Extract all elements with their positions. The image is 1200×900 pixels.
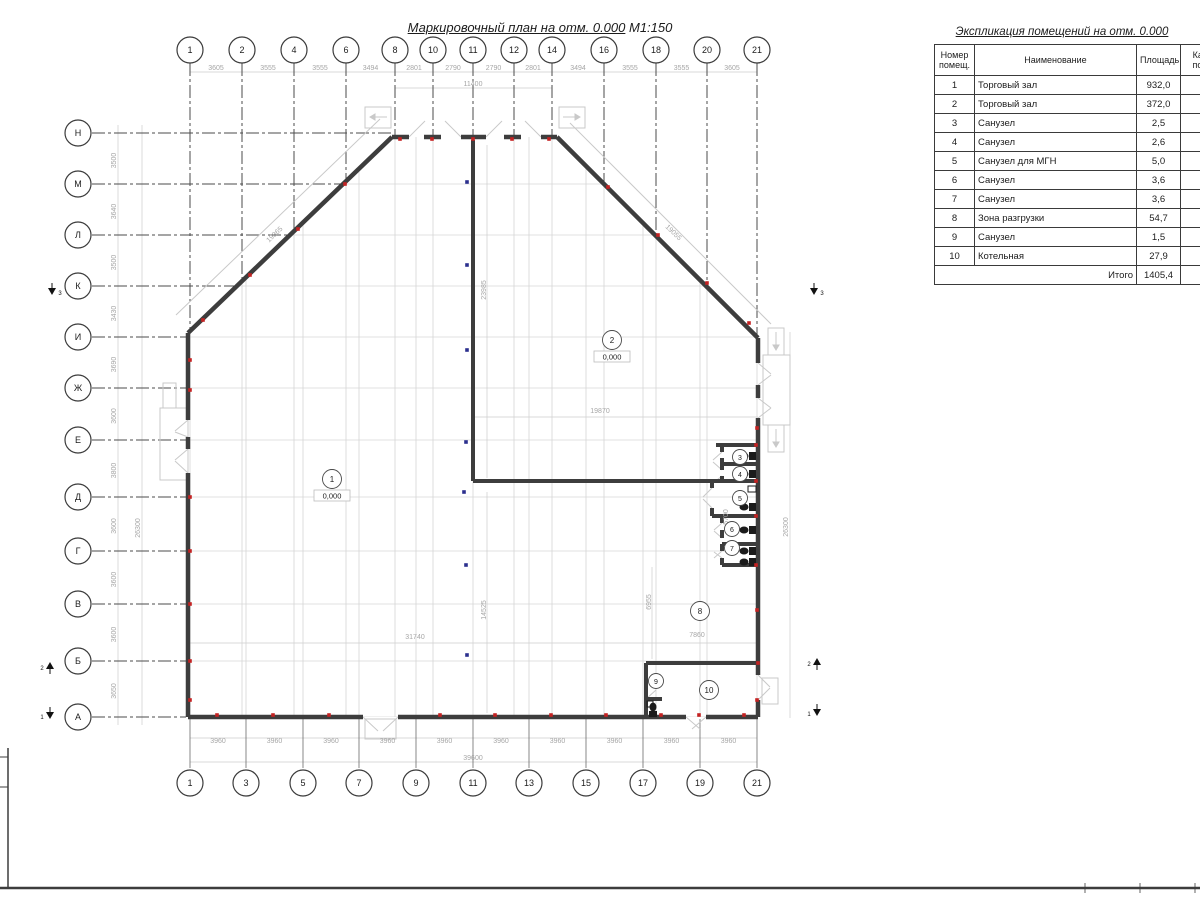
svg-text:Л: Л [75, 230, 81, 240]
svg-text:3800: 3800 [111, 463, 118, 479]
svg-text:0,000: 0,000 [323, 492, 342, 501]
svg-text:Н: Н [75, 128, 82, 138]
toilet-icon [749, 526, 756, 534]
room-area-cell: 1,5 [1137, 228, 1181, 247]
svg-text:23985: 23985 [481, 280, 488, 300]
svg-text:3960: 3960 [380, 738, 396, 745]
svg-text:3555: 3555 [622, 65, 638, 72]
svg-text:3960: 3960 [323, 738, 339, 745]
svg-text:Б: Б [75, 656, 81, 666]
svg-text:3: 3 [738, 455, 742, 462]
room-number-cell: 9 [935, 228, 975, 247]
axis-bubbles: 12468101112141618202113579111315171921НМ… [65, 37, 770, 796]
room-number-cell: 5 [935, 152, 975, 171]
svg-text:4: 4 [291, 45, 296, 55]
room-name-cell: Торговый зал [975, 76, 1137, 95]
dimension-lines [118, 72, 790, 762]
room-number-cell: 1 [935, 76, 975, 95]
svg-text:1: 1 [187, 778, 192, 788]
svg-text:3960: 3960 [721, 738, 737, 745]
explication-row: 3 Санузел 2,5 [935, 114, 1200, 133]
explication-row: 8 Зона разгрузки 54,7 [935, 209, 1200, 228]
svg-text:Е: Е [75, 435, 81, 445]
svg-text:3960: 3960 [664, 738, 680, 745]
svg-text:20: 20 [702, 45, 712, 55]
svg-text:3960: 3960 [437, 738, 453, 745]
svg-text:6955: 6955 [646, 594, 653, 610]
total-category-cell [1181, 266, 1200, 285]
svg-text:5: 5 [738, 496, 742, 503]
toilet-icon [749, 503, 756, 511]
svg-text:И: И [75, 332, 81, 342]
svg-text:3960: 3960 [267, 738, 283, 745]
total-row: Итого 1405,4 [935, 266, 1200, 285]
explication-panel: Экспликация помещений на отм. 0.000 Номе… [934, 26, 1200, 285]
svg-text:Г: Г [76, 546, 81, 556]
svg-text:3430: 3430 [111, 306, 118, 322]
svg-text:2: 2 [239, 45, 244, 55]
room-area-cell: 27,9 [1137, 247, 1181, 266]
svg-text:3: 3 [58, 291, 62, 297]
plan-title-text: Маркировочный план на отм. 0.000 [408, 20, 626, 35]
explication-row: 5 Санузел для МГН 5,0 [935, 152, 1200, 171]
room-name-cell: Котельная [975, 247, 1137, 266]
svg-text:3600: 3600 [111, 627, 118, 643]
room-name-cell: Санузел [975, 190, 1137, 209]
toilet-icon [749, 452, 756, 460]
svg-text:Д: Д [75, 492, 81, 502]
svg-text:11: 11 [468, 778, 477, 788]
svg-text:11400: 11400 [464, 81, 483, 88]
total-value: 1405,4 [1137, 266, 1181, 285]
room-name-cell: Санузел [975, 171, 1137, 190]
drawing-sheet: 3605355535553494280127902790280134943555… [0, 0, 1200, 900]
svg-text:39600: 39600 [463, 755, 483, 762]
svg-text:19870: 19870 [590, 408, 610, 415]
room-name-cell: Торговый зал [975, 95, 1137, 114]
svg-text:4: 4 [738, 472, 742, 479]
svg-text:К: К [75, 281, 81, 291]
svg-text:14525: 14525 [481, 600, 488, 620]
explication-row: 2 Торговый зал 372,0 [935, 95, 1200, 114]
room-number-cell: 8 [935, 209, 975, 228]
explication-row: 9 Санузел 1,5 [935, 228, 1200, 247]
col-header-category: Кат.пом [1181, 45, 1200, 76]
svg-text:3: 3 [243, 778, 248, 788]
room-category-cell [1181, 133, 1200, 152]
explication-row: 1 Торговый зал 932,0 [935, 76, 1200, 95]
svg-text:3960: 3960 [493, 738, 509, 745]
svg-text:7860: 7860 [689, 632, 705, 639]
svg-text:13: 13 [524, 778, 534, 788]
explication-row: 10 Котельная 27,9 [935, 247, 1200, 266]
svg-text:3600: 3600 [111, 572, 118, 588]
svg-text:18: 18 [651, 45, 661, 55]
svg-text:2: 2 [610, 336, 615, 345]
svg-text:15: 15 [581, 778, 591, 788]
room-area-cell: 2,6 [1137, 133, 1181, 152]
room-category-cell [1181, 190, 1200, 209]
svg-text:19: 19 [695, 778, 705, 788]
room-category-cell [1181, 247, 1200, 266]
room-area-cell: 5,0 [1137, 152, 1181, 171]
col-header-number: Номерпомещ. [935, 45, 975, 76]
svg-text:2801: 2801 [525, 65, 541, 72]
svg-text:1: 1 [187, 45, 192, 55]
svg-text:1: 1 [807, 712, 811, 718]
svg-text:1: 1 [330, 475, 335, 484]
room-number-markers: 10,00020,000345678910 [314, 331, 748, 700]
plan-scale: М1:150 [629, 20, 672, 35]
plan-title: Маркировочный план на отм. 0.000 М1:150 [372, 20, 708, 35]
room-number-cell: 4 [935, 133, 975, 152]
svg-text:26300: 26300 [135, 518, 142, 538]
svg-text:3605: 3605 [208, 65, 224, 72]
svg-text:3: 3 [820, 291, 824, 297]
room-name-cell: Санузел для МГН [975, 152, 1137, 171]
room-area-cell: 932,0 [1137, 76, 1181, 95]
svg-text:7: 7 [730, 546, 734, 553]
dimension-texts: 3605355535553494280127902790280134943555… [111, 56, 790, 762]
svg-text:2: 2 [807, 662, 811, 668]
svg-text:2790: 2790 [445, 65, 461, 72]
svg-text:3500: 3500 [111, 153, 118, 169]
sheet-frame [0, 748, 1200, 893]
room-category-cell [1181, 114, 1200, 133]
svg-text:М: М [74, 179, 82, 189]
svg-text:3500: 3500 [111, 255, 118, 271]
svg-text:3650: 3650 [111, 683, 118, 699]
svg-text:21: 21 [752, 778, 762, 788]
room-area-cell: 3,6 [1137, 190, 1181, 209]
svg-text:8: 8 [698, 607, 703, 616]
svg-text:3494: 3494 [363, 65, 379, 72]
total-label: Итого [935, 266, 1137, 285]
room-area-cell: 3,6 [1137, 171, 1181, 190]
svg-text:0,000: 0,000 [603, 353, 622, 362]
room-number-cell: 6 [935, 171, 975, 190]
svg-text:3690: 3690 [111, 357, 118, 373]
svg-text:16: 16 [599, 45, 609, 55]
svg-text:3555: 3555 [312, 65, 328, 72]
room-number-cell: 2 [935, 95, 975, 114]
col-header-name: Наименование [975, 45, 1137, 76]
explication-row: 4 Санузел 2,6 [935, 133, 1200, 152]
col-header-area: Площадь [1137, 45, 1181, 76]
svg-text:А: А [75, 712, 81, 722]
svg-text:14: 14 [547, 45, 557, 55]
svg-text:1: 1 [40, 715, 44, 721]
svg-text:Ж: Ж [74, 383, 83, 393]
svg-text:3640: 3640 [111, 204, 118, 220]
svg-text:6: 6 [343, 45, 348, 55]
svg-text:10: 10 [428, 45, 438, 55]
svg-text:3605: 3605 [724, 65, 740, 72]
svg-text:12: 12 [509, 45, 519, 55]
room-number-cell: 7 [935, 190, 975, 209]
svg-text:31740: 31740 [405, 634, 425, 641]
svg-text:9: 9 [654, 679, 658, 686]
room-number-cell: 3 [935, 114, 975, 133]
room-name-cell: Санузел [975, 133, 1137, 152]
room-name-cell: Зона разгрузки [975, 209, 1137, 228]
svg-text:3555: 3555 [674, 65, 690, 72]
room-area-cell: 54,7 [1137, 209, 1181, 228]
svg-text:3494: 3494 [570, 65, 586, 72]
svg-text:3960: 3960 [210, 738, 226, 745]
svg-text:26300: 26300 [783, 517, 790, 537]
svg-text:3960: 3960 [607, 738, 623, 745]
room-category-cell [1181, 95, 1200, 114]
toilet-icon [649, 711, 657, 717]
explication-row: 7 Санузел 3,6 [935, 190, 1200, 209]
explication-title: Экспликация помещений на отм. 0.000 [934, 26, 1190, 38]
svg-text:2790: 2790 [486, 65, 502, 72]
room-name-cell: Санузел [975, 114, 1137, 133]
room-category-cell [1181, 228, 1200, 247]
svg-text:5: 5 [300, 778, 305, 788]
svg-text:3600: 3600 [111, 408, 118, 424]
room-area-cell: 2,5 [1137, 114, 1181, 133]
svg-text:3600: 3600 [111, 518, 118, 534]
svg-text:3555: 3555 [260, 65, 276, 72]
explication-table: Номерпомещ. Наименование Площадь Кат.пом… [934, 44, 1200, 285]
room-name-cell: Санузел [975, 228, 1137, 247]
svg-text:8: 8 [392, 45, 397, 55]
room-category-cell [1181, 209, 1200, 228]
svg-text:10: 10 [705, 686, 714, 695]
svg-text:2801: 2801 [406, 65, 422, 72]
explication-row: 6 Санузел 3,6 [935, 171, 1200, 190]
toilet-icon [749, 470, 756, 478]
toilet-icon [749, 547, 756, 555]
room-area-cell: 372,0 [1137, 95, 1181, 114]
svg-text:21: 21 [752, 45, 762, 55]
svg-text:2: 2 [40, 666, 44, 672]
svg-text:В: В [75, 599, 81, 609]
svg-text:17: 17 [638, 778, 648, 788]
room-category-cell [1181, 76, 1200, 95]
svg-text:3960: 3960 [550, 738, 566, 745]
svg-text:11: 11 [468, 45, 477, 55]
room-number-cell: 10 [935, 247, 975, 266]
room-category-cell [1181, 152, 1200, 171]
sink-icon [748, 486, 756, 492]
room-category-cell [1181, 171, 1200, 190]
svg-text:9: 9 [413, 778, 418, 788]
svg-text:6: 6 [730, 527, 734, 534]
svg-text:7: 7 [356, 778, 361, 788]
